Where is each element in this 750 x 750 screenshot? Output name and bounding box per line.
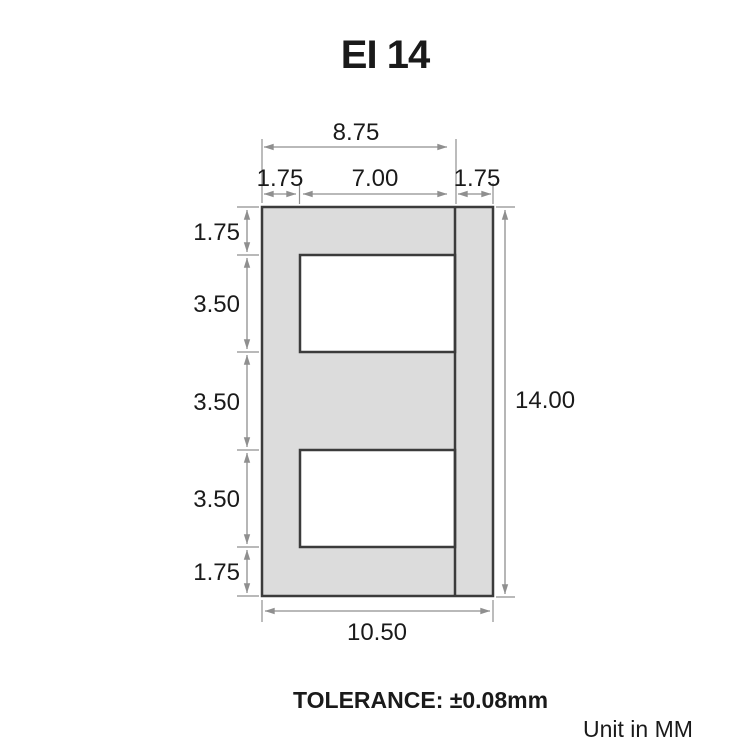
dim-label-left-3: 3.50 xyxy=(193,486,240,513)
dim-label-top-left-leg: 1.75 xyxy=(257,165,304,192)
tolerance-note: TOLERANCE: ±0.08mm xyxy=(293,687,548,713)
dim-label-left-0: 1.75 xyxy=(193,219,240,246)
core-shape xyxy=(262,207,493,596)
core-window-top xyxy=(300,255,455,352)
dim-label-top-right-leg: 1.75 xyxy=(454,165,501,192)
dim-label-left-1: 3.50 xyxy=(193,291,240,318)
dim-label-left-4: 1.75 xyxy=(193,559,240,586)
drawing-title: EI 14 xyxy=(341,33,431,77)
technical-drawing: EI 14 xyxy=(0,0,750,750)
drawing-page: EI 14 xyxy=(0,0,750,750)
core-window-bottom xyxy=(300,450,455,547)
dim-label-top-overall: 8.75 xyxy=(333,119,380,146)
dim-label-height: 14.00 xyxy=(515,387,575,414)
dim-label-width: 10.50 xyxy=(347,619,407,646)
dim-label-left-2: 3.50 xyxy=(193,389,240,416)
unit-note: Unit in MM xyxy=(583,716,693,742)
dim-label-top-window: 7.00 xyxy=(352,165,399,192)
